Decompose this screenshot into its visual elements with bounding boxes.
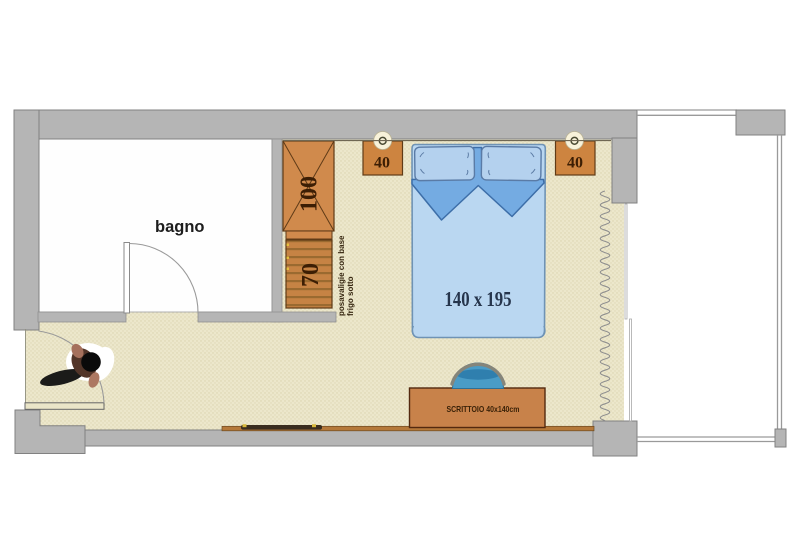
svg-text:40: 40: [567, 155, 583, 172]
svg-text:70: 70: [298, 263, 324, 287]
svg-text:140 x 195: 140 x 195: [445, 287, 512, 311]
svg-text:100: 100: [297, 176, 323, 212]
svg-text:posavaligie con base: posavaligie con base: [337, 235, 346, 316]
svg-text:SCRITTOIO 40x140cm: SCRITTOIO 40x140cm: [447, 404, 520, 414]
svg-text:40: 40: [374, 155, 390, 172]
svg-text:bagno: bagno: [155, 218, 205, 236]
svg-text:frigo sotto: frigo sotto: [346, 276, 355, 316]
